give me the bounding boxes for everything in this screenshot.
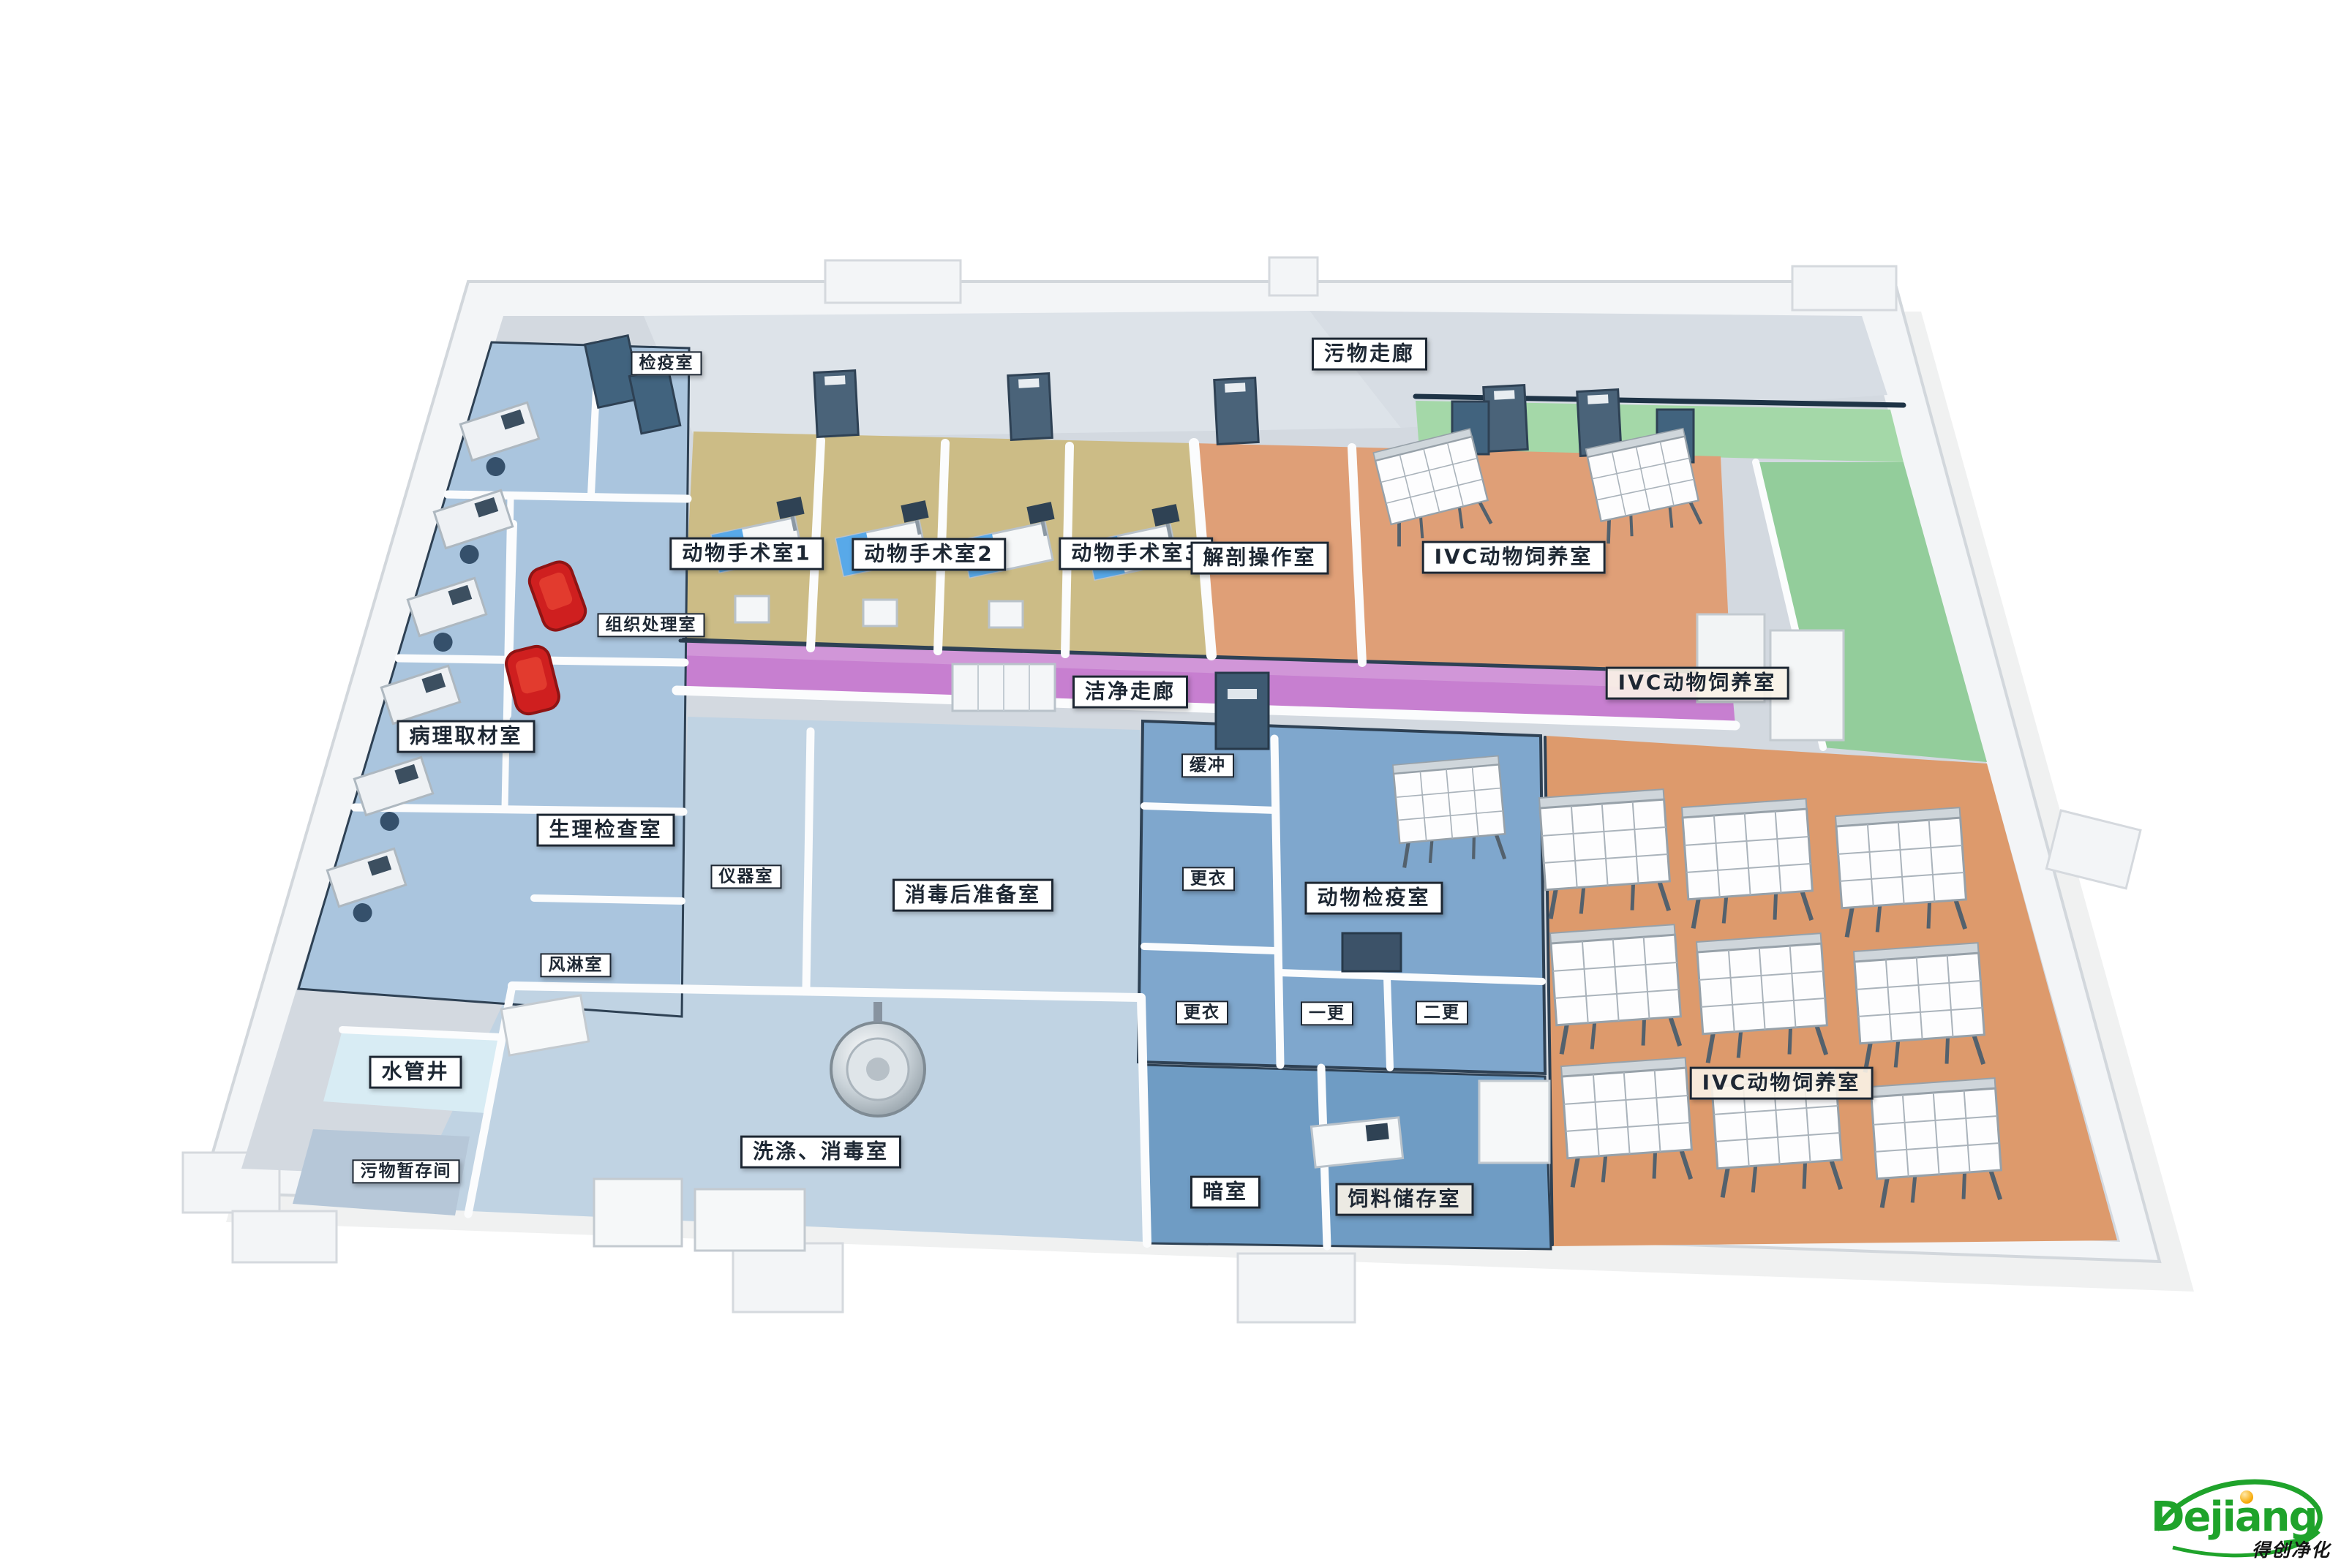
floor-water-shaft <box>323 1030 500 1113</box>
wall-block-top-2 <box>1269 257 1318 295</box>
floor-center-left <box>680 717 1143 996</box>
wall-block-steps-2 <box>233 1211 337 1262</box>
white-cabinet <box>1770 630 1844 740</box>
door <box>1214 378 1259 445</box>
wall-block-top-1 <box>825 260 961 303</box>
white-cabinet <box>594 1179 682 1246</box>
door <box>814 371 859 437</box>
wall-block-bottom-1 <box>733 1243 843 1312</box>
watermark-tagline: 得创净化 <box>2252 1536 2331 1562</box>
watermark: Dejiang 得创净化 <box>2143 1469 2334 1562</box>
sink-counter <box>1342 933 1401 971</box>
equipment-cart <box>735 596 769 622</box>
door <box>1008 374 1053 440</box>
watermark-dot-icon <box>2240 1490 2253 1504</box>
white-cabinet <box>1479 1081 1549 1163</box>
wall-block-top-3 <box>1792 266 1896 310</box>
equipment-cart <box>863 600 897 626</box>
door <box>1484 385 1528 452</box>
floorplan-stage: 检疫室组织处理室动物手术室1动物手术室2动物手术室3解剖操作室IVC动物饲养室污… <box>0 0 2341 1568</box>
watermark-brand: Dejiang <box>2151 1493 2317 1541</box>
floor-zones <box>293 342 2117 1249</box>
floorplan-render <box>0 0 2341 1568</box>
shelf-unit <box>952 664 1055 711</box>
white-cabinet <box>1697 614 1765 702</box>
white-cabinet <box>695 1189 805 1251</box>
equipment-cart <box>989 601 1023 627</box>
door <box>1216 673 1269 749</box>
desk-with-monitor <box>1311 1117 1402 1167</box>
wall-block-bottom-2 <box>1238 1254 1355 1322</box>
floor-waste-room <box>293 1129 470 1215</box>
